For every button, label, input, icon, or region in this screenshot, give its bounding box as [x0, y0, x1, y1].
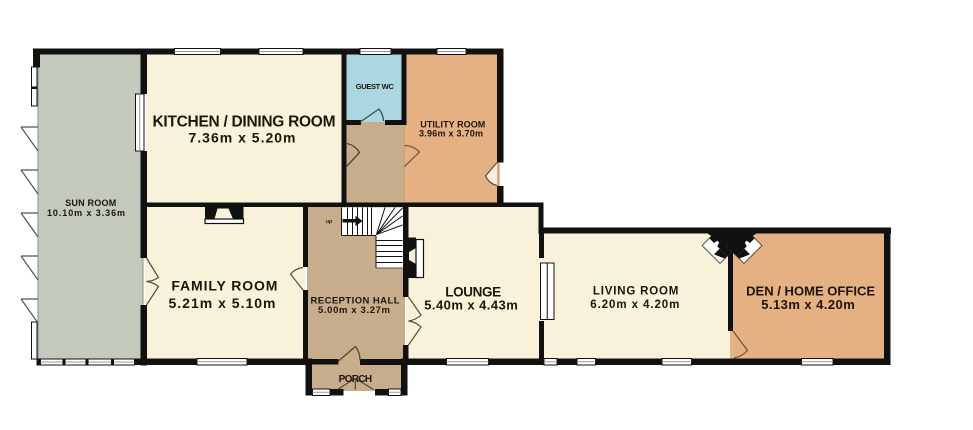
- svg-text:7.36m x 5.20m: 7.36m x 5.20m: [189, 130, 296, 146]
- svg-text:KITCHEN / DINING ROOM: KITCHEN / DINING ROOM: [153, 114, 336, 131]
- svg-text:FAMILY ROOM: FAMILY ROOM: [171, 277, 277, 293]
- svg-text:5.40m x 4.43m: 5.40m x 4.43m: [424, 298, 518, 313]
- svg-text:SUN ROOM: SUN ROOM: [65, 198, 116, 208]
- svg-text:6.20m x 4.20m: 6.20m x 4.20m: [590, 299, 679, 311]
- svg-text:LIVING ROOM: LIVING ROOM: [593, 286, 679, 298]
- svg-text:5.13m x 4.20m: 5.13m x 4.20m: [761, 297, 855, 312]
- svg-text:5.21m x 5.10m: 5.21m x 5.10m: [169, 295, 276, 311]
- svg-text:GUEST WC: GUEST WC: [356, 82, 395, 91]
- svg-text:PORCH: PORCH: [339, 374, 373, 385]
- svg-text:3.96m x 3.70m: 3.96m x 3.70m: [419, 128, 483, 138]
- svg-text:up: up: [326, 219, 332, 225]
- svg-text:5.00m x 3.27m: 5.00m x 3.27m: [318, 305, 390, 316]
- svg-text:10.10m x 3.36m: 10.10m x 3.36m: [47, 208, 125, 218]
